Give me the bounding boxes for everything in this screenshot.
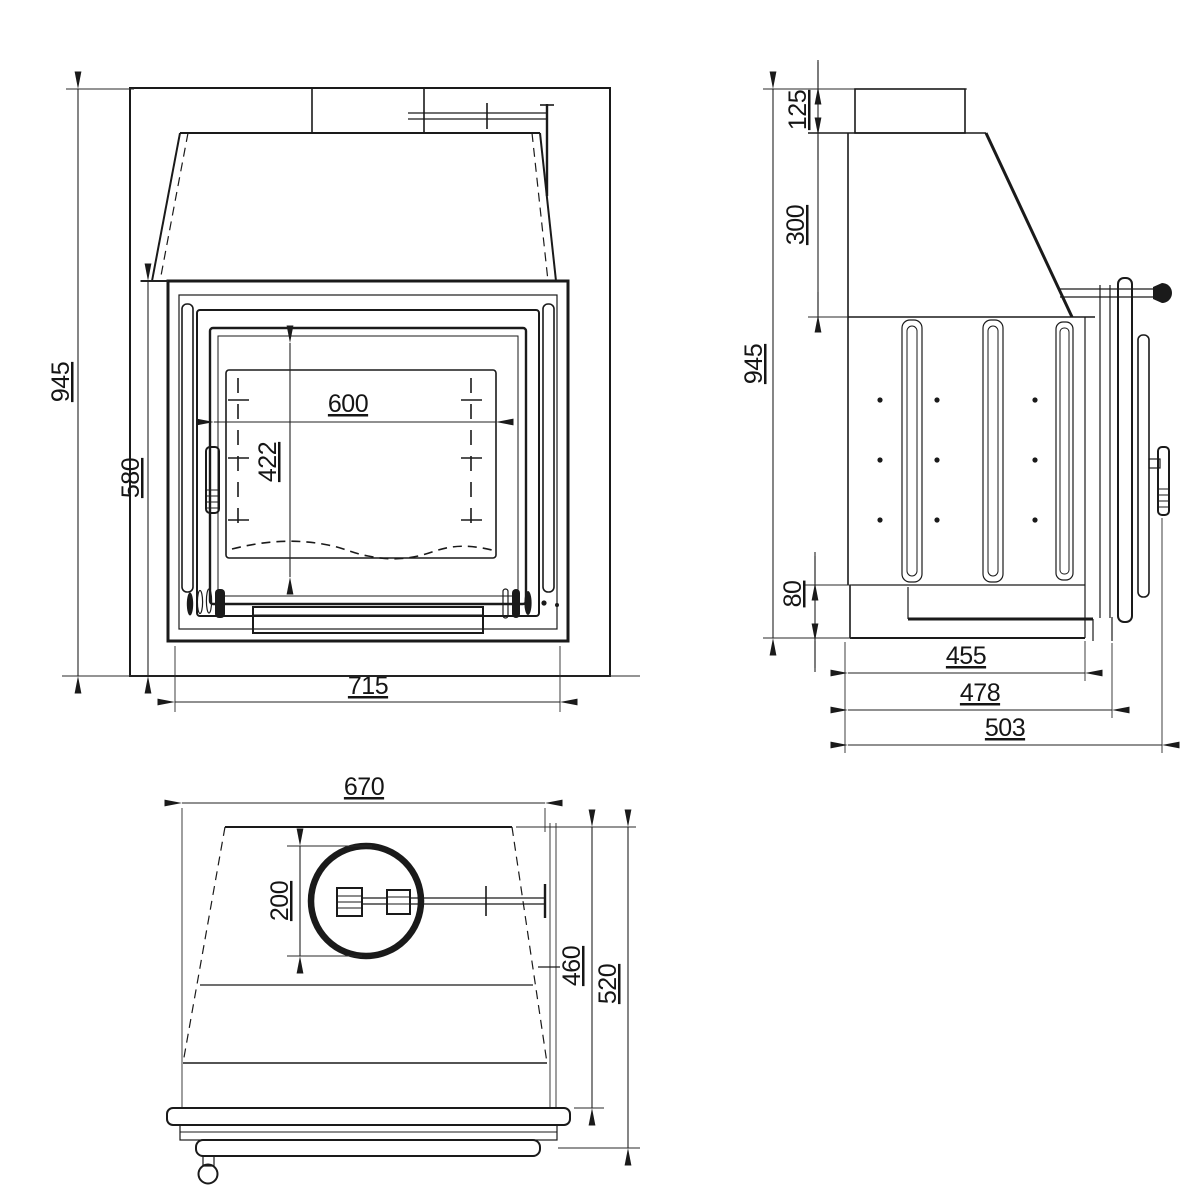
door-frame <box>197 310 539 616</box>
door-knob-top <box>199 1165 218 1184</box>
dim-label-front-glass-height: 422 <box>254 442 282 482</box>
dim-label-side-hood-height: 300 <box>782 205 810 245</box>
dim-label-side-body-depth: 478 <box>960 679 1000 707</box>
dim-label-side-overall-height: 945 <box>740 344 768 384</box>
dim-label-side-collar-height: 125 <box>784 90 812 130</box>
top-dimension-width: 670 <box>182 773 545 1108</box>
handle-bar <box>196 1140 540 1156</box>
firebox-body-side <box>808 317 1095 585</box>
flue-outlet-top <box>311 846 545 956</box>
firebox-frames <box>168 281 568 641</box>
front-face-top <box>167 1108 570 1184</box>
dim-label-front-overall-height: 945 <box>47 362 75 402</box>
damper-plates <box>337 888 410 916</box>
dim-label-side-firebox-depth: 455 <box>946 642 986 670</box>
hood-side <box>808 133 1072 585</box>
top-dimensions-depth: 460 520 <box>558 827 640 1148</box>
door-side <box>1138 335 1149 597</box>
drawing-sheet: 945 580 600 422 715 <box>0 0 1200 1200</box>
dim-label-side-overall-depth: 503 <box>985 714 1025 742</box>
front-frame-bar <box>167 1108 570 1125</box>
front-frame-side <box>1100 278 1169 622</box>
damper-rod-side <box>1060 283 1172 303</box>
dim-label-front-frame-width: 715 <box>348 672 388 700</box>
door-handle-front <box>206 447 219 513</box>
side-dimensions: 125 300 945 80 455 478 503 <box>740 60 1162 753</box>
mounting-flange <box>1118 278 1132 622</box>
dim-label-front-glass-width: 600 <box>328 390 368 418</box>
dim-label-top-flue-diameter: 200 <box>266 881 294 921</box>
log-retainer-line <box>232 541 492 559</box>
dim-label-top-overall-depth: 520 <box>594 964 622 1004</box>
dim-label-top-body-depth: 460 <box>558 946 586 986</box>
door-handle-side <box>1149 447 1169 515</box>
pilaster-right <box>543 304 554 592</box>
damper-rod-front <box>408 103 554 196</box>
technical-drawing: 945 580 600 422 715 <box>0 0 1200 1200</box>
hood-front <box>141 133 568 281</box>
convection-fin <box>902 320 922 582</box>
damper-knob <box>1153 283 1172 303</box>
convection-fin <box>983 320 1003 582</box>
front-dimensions: 945 580 600 422 715 <box>47 89 640 712</box>
base-side <box>850 585 1112 641</box>
side-view: 125 300 945 80 455 478 503 <box>740 60 1172 753</box>
dim-label-top-body-width: 670 <box>344 773 384 801</box>
front-view: 945 580 600 422 715 <box>47 88 640 712</box>
dim-label-front-firebox-height: 580 <box>117 458 145 498</box>
top-view: 670 <box>167 773 640 1184</box>
flue-collar-front <box>312 88 424 133</box>
pilaster-left <box>182 304 193 592</box>
convection-fin <box>1056 322 1073 580</box>
dim-label-side-base-height: 80 <box>779 581 807 608</box>
flue-collar-side <box>855 89 965 133</box>
